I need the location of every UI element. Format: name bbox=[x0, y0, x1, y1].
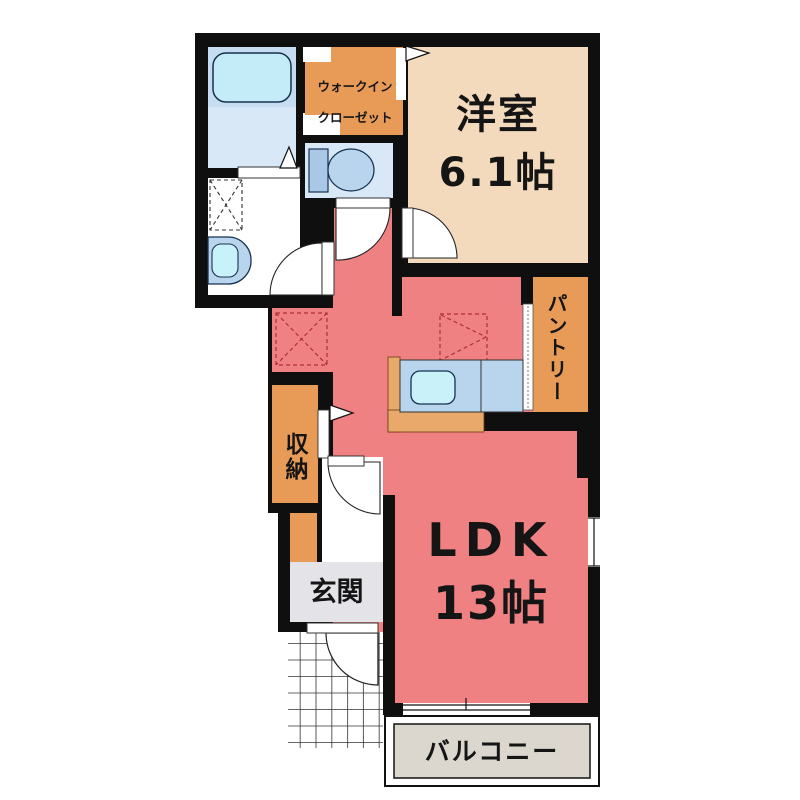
toilet-bowl bbox=[328, 149, 374, 191]
bathtub bbox=[213, 53, 291, 102]
window-right bbox=[588, 517, 600, 567]
ldk-label: LDK bbox=[393, 512, 589, 570]
wall-stub-kitchen bbox=[392, 256, 402, 316]
wall-storage-top bbox=[268, 372, 320, 385]
walk-in-closet-label: ウォークイン クローゼット bbox=[303, 63, 407, 126]
storage-label: 収納 bbox=[282, 414, 305, 500]
wic-notch-top bbox=[303, 47, 331, 62]
ldk-size: 13帖 bbox=[393, 575, 589, 633]
entry-door bbox=[307, 623, 378, 633]
pantry-wall-bottom bbox=[483, 412, 588, 431]
wall-below-storage bbox=[268, 503, 318, 513]
shoe-cabinet bbox=[290, 513, 318, 562]
pantry-wall-top bbox=[521, 277, 533, 305]
wall-storage-right bbox=[317, 372, 330, 412]
western-room-size: 6.1帖 bbox=[408, 148, 588, 198]
washbasin bbox=[208, 237, 251, 284]
storage-door bbox=[318, 410, 329, 458]
kitchen-sink bbox=[411, 371, 455, 404]
toilet-door bbox=[336, 198, 390, 208]
ldk-door bbox=[328, 456, 364, 466]
balcony-label: バルコニー bbox=[394, 736, 590, 767]
wall-shoe-right bbox=[317, 513, 322, 562]
bath-door bbox=[238, 167, 300, 178]
washroom-door bbox=[322, 242, 334, 295]
entrance-label: 玄関 bbox=[290, 576, 383, 610]
western-room-door bbox=[402, 208, 413, 258]
toilet-tank bbox=[309, 149, 328, 192]
floorplan-canvas: ウォークイン クローゼット 洋室 6.1帖 パントリー 収納 玄関 LDK 13… bbox=[0, 0, 800, 800]
western-room-label: 洋室 bbox=[408, 90, 588, 140]
pantry-label: パントリー bbox=[546, 284, 566, 412]
pantry-sliding-opening bbox=[523, 304, 533, 410]
wall-inset-right bbox=[577, 420, 588, 478]
